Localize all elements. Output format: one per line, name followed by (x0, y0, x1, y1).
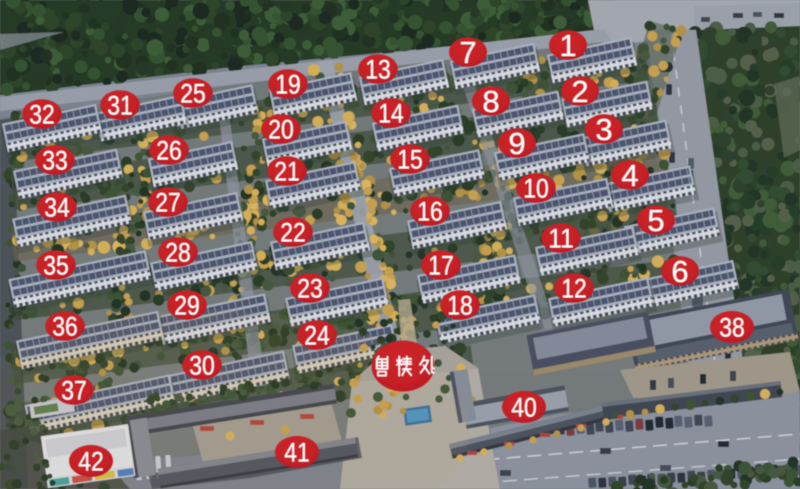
svg-text:11: 11 (548, 224, 574, 254)
svg-text:13: 13 (365, 55, 391, 85)
svg-text:36: 36 (52, 312, 78, 342)
svg-text:3: 3 (595, 112, 612, 147)
svg-text:38: 38 (719, 313, 745, 343)
svg-text:7: 7 (459, 35, 476, 70)
svg-text:10: 10 (523, 174, 549, 204)
svg-text:34: 34 (44, 193, 70, 223)
svg-text:1: 1 (559, 28, 576, 63)
svg-text:29: 29 (174, 291, 200, 321)
svg-text:15: 15 (397, 145, 423, 175)
svg-text:9: 9 (508, 126, 525, 161)
svg-text:41: 41 (284, 438, 310, 468)
svg-text:18: 18 (447, 291, 473, 321)
svg-text:21: 21 (274, 157, 300, 187)
svg-text:6: 6 (671, 254, 688, 289)
svg-text:8: 8 (482, 84, 499, 119)
svg-text:19: 19 (275, 70, 301, 100)
svg-text:40: 40 (511, 393, 537, 423)
svg-text:37: 37 (61, 376, 87, 406)
svg-text:20: 20 (268, 115, 294, 145)
svg-text:23: 23 (297, 274, 323, 304)
svg-text:31: 31 (107, 91, 133, 121)
svg-text:27: 27 (155, 188, 181, 218)
svg-text:33: 33 (42, 146, 68, 176)
svg-text:25: 25 (180, 79, 206, 109)
svg-text:2: 2 (571, 74, 588, 109)
svg-text:42: 42 (78, 447, 104, 477)
svg-text:5: 5 (647, 203, 664, 238)
svg-text:35: 35 (43, 251, 69, 281)
svg-text:16: 16 (417, 197, 443, 227)
svg-text:30: 30 (189, 351, 215, 381)
svg-text:26: 26 (156, 136, 182, 166)
svg-text:14: 14 (378, 99, 404, 129)
svg-text:17: 17 (428, 251, 454, 281)
svg-text:4: 4 (621, 158, 638, 193)
svg-text:12: 12 (561, 274, 587, 304)
svg-text:22: 22 (280, 218, 306, 248)
svg-text:32: 32 (29, 100, 55, 130)
svg-text:24: 24 (304, 321, 330, 351)
svg-text:28: 28 (165, 238, 191, 268)
